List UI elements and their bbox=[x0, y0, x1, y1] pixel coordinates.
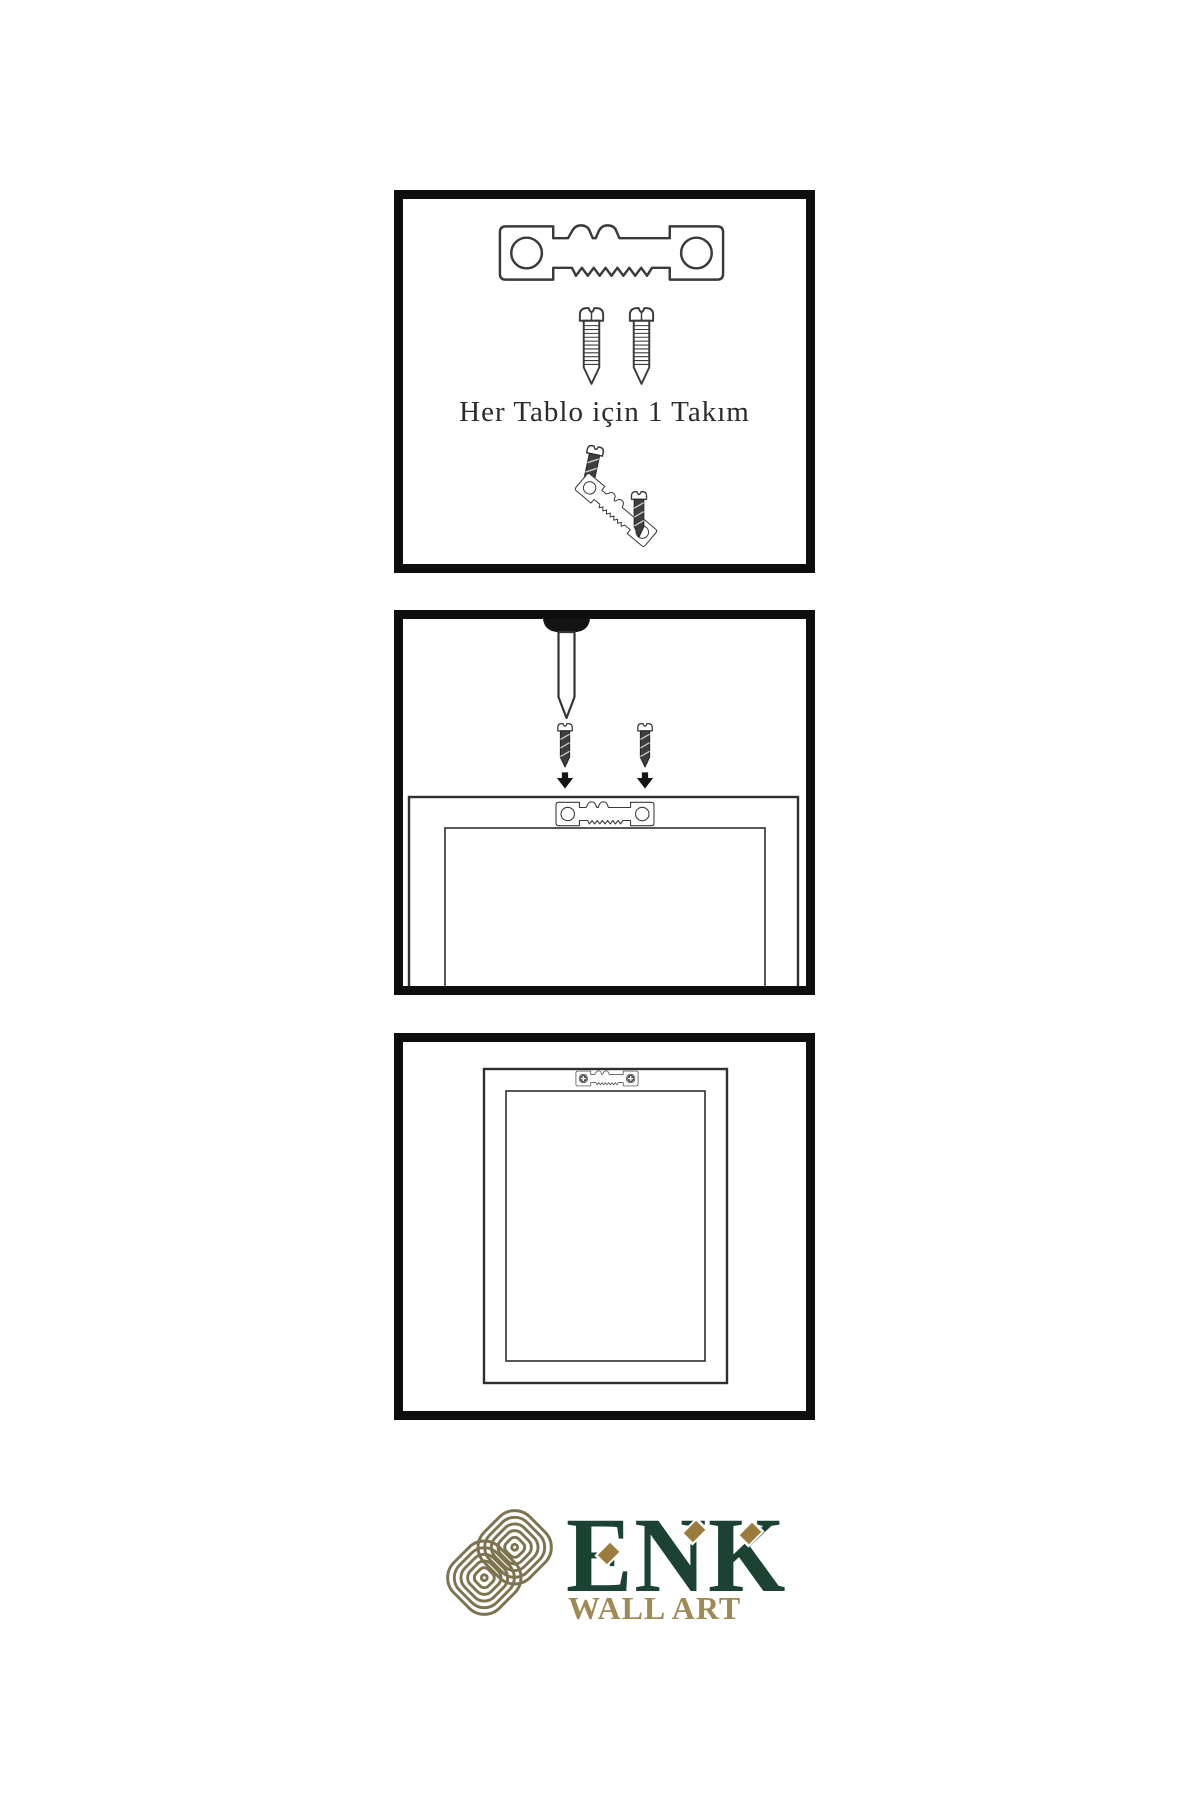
panel-install-hanger bbox=[394, 610, 815, 995]
install-art bbox=[403, 619, 806, 986]
sawtooth-hanger-tilted-icon bbox=[574, 472, 657, 547]
sawtooth-hanger-icon bbox=[556, 802, 654, 826]
down-arrow-icon bbox=[557, 772, 573, 788]
frame-back-icon bbox=[484, 1069, 727, 1383]
down-arrow-icon bbox=[637, 772, 653, 788]
dark-screw-icon bbox=[638, 724, 652, 767]
panel-hardware-kit: Her Tablo için 1 Takım bbox=[394, 190, 815, 573]
instruction-sheet: Her Tablo için 1 Takım bbox=[0, 0, 1200, 1800]
nail-icon bbox=[543, 619, 590, 718]
hardware-kit-art bbox=[403, 199, 806, 564]
result-art bbox=[403, 1042, 806, 1411]
panel-mounted-result bbox=[394, 1033, 815, 1420]
kit-caption: Her Tablo için 1 Takım bbox=[403, 396, 806, 429]
screw-icon bbox=[580, 308, 603, 384]
phillips-screw-hanger-icon bbox=[576, 1071, 638, 1086]
dark-screw-icon bbox=[558, 724, 572, 767]
knot-logo-icon bbox=[437, 1500, 562, 1625]
screw-icon bbox=[630, 308, 653, 384]
sawtooth-hanger-icon bbox=[500, 225, 723, 279]
frame-back-icon bbox=[409, 797, 798, 986]
brand-tagline: WALL ART bbox=[568, 1592, 741, 1624]
